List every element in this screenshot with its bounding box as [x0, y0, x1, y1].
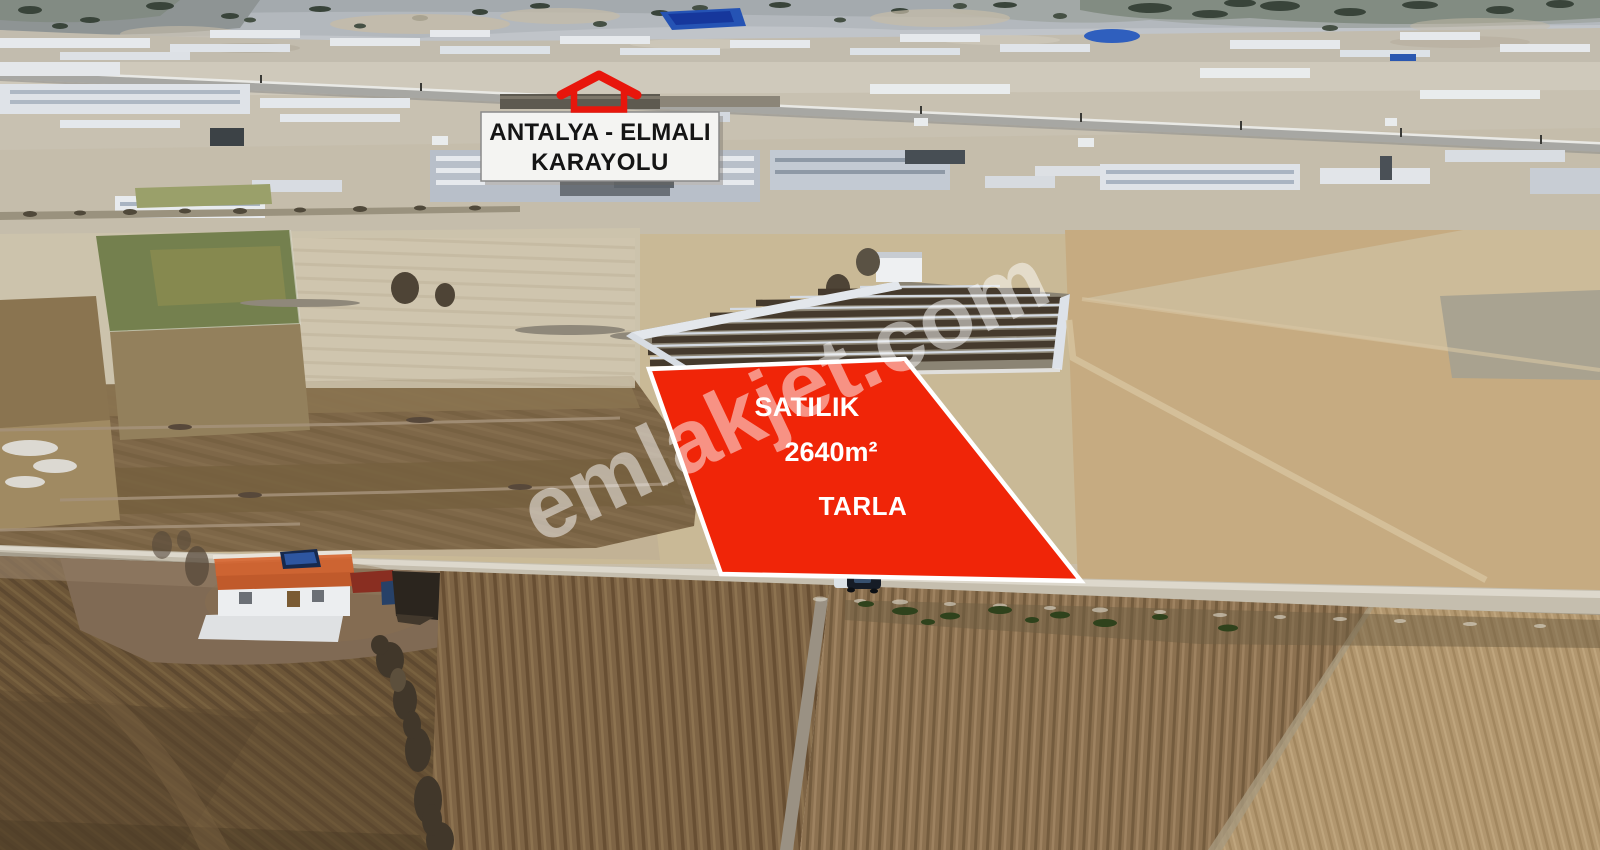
svg-text:TARLA: TARLA — [819, 491, 908, 521]
svg-text:KARAYOLU: KARAYOLU — [531, 149, 669, 176]
svg-text:ANTALYA - ELMALI: ANTALYA - ELMALI — [489, 119, 710, 146]
